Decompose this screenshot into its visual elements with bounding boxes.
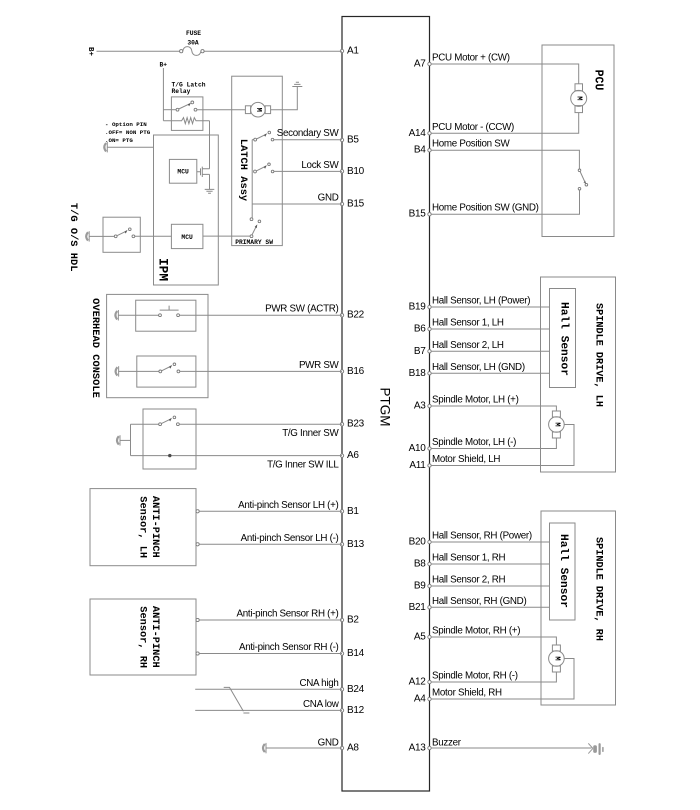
svg-text:A10: A10: [409, 443, 427, 454]
svg-text:Relay: Relay: [172, 88, 191, 95]
svg-text:B16: B16: [347, 366, 365, 377]
svg-text:- Option PIN: - Option PIN: [105, 121, 147, 128]
svg-text:A3: A3: [414, 401, 426, 412]
svg-text:B2: B2: [347, 615, 359, 626]
svg-text:Buzzer: Buzzer: [432, 737, 462, 748]
svg-text:GND: GND: [318, 737, 339, 748]
svg-text:A4: A4: [414, 694, 426, 705]
svg-text:PRIMARY SW: PRIMARY SW: [235, 239, 273, 246]
svg-text:B22: B22: [347, 310, 365, 321]
svg-text:B19: B19: [409, 302, 427, 313]
svg-text:Hall Sensor, RH (GND): Hall Sensor, RH (GND): [432, 596, 526, 607]
svg-text:GND: GND: [318, 193, 339, 204]
svg-text:Spindle Motor, RH (+): Spindle Motor, RH (+): [432, 626, 520, 637]
svg-text:Spindle Motor, LH (+): Spindle Motor, LH (+): [432, 395, 519, 406]
svg-text:Motor Shield, LH: Motor Shield, LH: [432, 454, 500, 465]
svg-text:PWR SW: PWR SW: [299, 360, 340, 371]
svg-text:Anti-pinch Sensor RH (+): Anti-pinch Sensor RH (+): [237, 609, 339, 620]
svg-text:A14: A14: [409, 128, 427, 139]
svg-text:MCU: MCU: [181, 234, 193, 241]
svg-text:PCU Motor + (CW): PCU Motor + (CW): [432, 53, 510, 64]
svg-text:T/G Inner SW: T/G Inner SW: [282, 428, 339, 439]
svg-text:ANTI-PINCH: ANTI-PINCH: [149, 496, 161, 558]
svg-text:Anti-pinch Sensor RH (-): Anti-pinch Sensor RH (-): [239, 642, 339, 653]
svg-text:B15: B15: [409, 209, 427, 220]
svg-text:PWR SW (ACTR): PWR SW (ACTR): [265, 304, 338, 315]
svg-text:Sensor, RH: Sensor, RH: [136, 606, 148, 668]
svg-text:B7: B7: [414, 346, 426, 357]
svg-text:ANTI-PINCH: ANTI-PINCH: [149, 606, 161, 668]
svg-text:B21: B21: [409, 602, 427, 613]
svg-text:Hall Sensor, LH (Power): Hall Sensor, LH (Power): [432, 296, 530, 307]
svg-text:A13: A13: [409, 743, 427, 754]
svg-text:Hall Sensor: Hall Sensor: [557, 534, 569, 608]
svg-text:B15: B15: [347, 199, 365, 210]
svg-text:M: M: [254, 108, 262, 112]
svg-text:B20: B20: [409, 537, 427, 548]
svg-text:B5: B5: [347, 135, 359, 146]
svg-text:CNA low: CNA low: [303, 699, 340, 710]
svg-text:M: M: [575, 96, 583, 100]
svg-text:FUSE: FUSE: [186, 30, 201, 37]
svg-text:LATCH Assy: LATCH Assy: [237, 139, 249, 202]
svg-text:Hall Sensor, LH (GND): Hall Sensor, LH (GND): [432, 362, 525, 373]
svg-text:PCU Motor - (CCW): PCU Motor - (CCW): [432, 122, 514, 133]
svg-text:30A: 30A: [187, 40, 199, 47]
svg-text:Hall Sensor 2, LH: Hall Sensor 2, LH: [432, 340, 504, 351]
svg-text:Lock SW: Lock SW: [301, 160, 339, 171]
svg-text:A11: A11: [409, 460, 426, 471]
svg-text:B8: B8: [414, 559, 426, 570]
svg-text:B23: B23: [347, 419, 365, 430]
svg-text:SPINDLE DRIVE, LH: SPINDLE DRIVE, LH: [593, 303, 604, 407]
svg-text:M: M: [552, 656, 560, 660]
svg-text:OVERHEAD CONSOLE: OVERHEAD CONSOLE: [89, 298, 101, 398]
svg-text:B14: B14: [347, 648, 365, 659]
svg-text:B13: B13: [347, 539, 365, 550]
svg-text:B+: B+: [160, 62, 168, 69]
svg-text:Spindle Motor, LH (-): Spindle Motor, LH (-): [432, 437, 516, 448]
svg-text:Hall Sensor, RH (Power): Hall Sensor, RH (Power): [432, 531, 532, 542]
svg-text:B6: B6: [414, 324, 426, 335]
svg-text:Motor Shield, RH: Motor Shield, RH: [432, 688, 502, 699]
svg-text:PTGM: PTGM: [378, 388, 393, 427]
svg-text:MCU: MCU: [177, 169, 189, 176]
svg-text:Home Position SW (GND): Home Position SW (GND): [432, 203, 539, 214]
svg-text:A5: A5: [414, 632, 426, 643]
svg-text:T/G Inner SW ILL: T/G Inner SW ILL: [267, 460, 339, 471]
svg-text:Anti-pinch Sensor LH (-): Anti-pinch Sensor LH (-): [241, 533, 339, 544]
svg-text:B12: B12: [347, 705, 365, 716]
svg-text:B4: B4: [414, 145, 426, 156]
svg-text:Hall Sensor 2, RH: Hall Sensor 2, RH: [432, 575, 506, 586]
svg-text:CNA high: CNA high: [300, 678, 339, 689]
svg-text:B24: B24: [347, 684, 365, 695]
svg-text:Spindle Motor, RH (-): Spindle Motor, RH (-): [432, 671, 518, 682]
svg-text:SPINDLE DRIVE, RH: SPINDLE DRIVE, RH: [593, 537, 604, 641]
svg-text:B10: B10: [347, 166, 365, 177]
svg-text:M: M: [552, 422, 560, 426]
svg-text:Anti-pinch Sensor LH (+): Anti-pinch Sensor LH (+): [238, 500, 338, 511]
svg-text:A1: A1: [347, 46, 359, 57]
svg-text:B1: B1: [347, 506, 359, 517]
svg-text:B+: B+: [86, 47, 94, 57]
svg-text:PCU: PCU: [591, 70, 604, 91]
svg-text:A12: A12: [409, 677, 427, 688]
svg-text:Secondary SW: Secondary SW: [277, 128, 340, 139]
svg-text:Sensor, LH: Sensor, LH: [136, 496, 148, 558]
svg-text:B18: B18: [409, 368, 427, 379]
svg-text:IPM: IPM: [155, 258, 170, 281]
svg-text:.OFF= NON PTG: .OFF= NON PTG: [105, 129, 151, 136]
svg-text:Hall Sensor 1, RH: Hall Sensor 1, RH: [432, 553, 506, 564]
svg-text:B9: B9: [414, 581, 426, 592]
svg-text:Home Position SW: Home Position SW: [432, 139, 510, 150]
svg-text:A7: A7: [414, 59, 426, 70]
svg-text:A8: A8: [347, 743, 359, 754]
svg-text:.ON= PTG: .ON= PTG: [105, 137, 133, 144]
svg-text:T/G O/S HDL: T/G O/S HDL: [67, 203, 79, 272]
svg-text:A6: A6: [347, 450, 359, 461]
svg-text:Hall Sensor: Hall Sensor: [557, 302, 569, 376]
svg-text:Hall Sensor 1, LH: Hall Sensor 1, LH: [432, 318, 504, 329]
